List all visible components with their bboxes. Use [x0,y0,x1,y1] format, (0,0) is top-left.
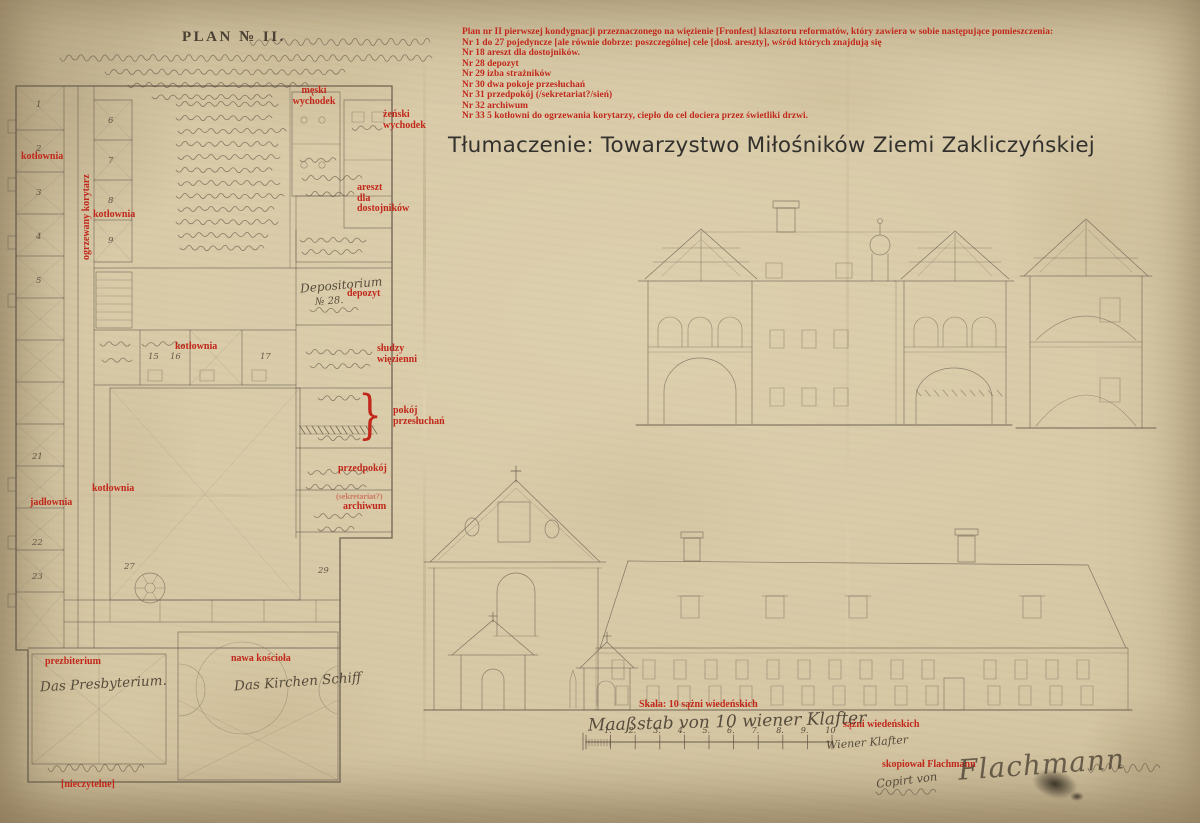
drawing-line [128,82,308,87]
drawing-line [580,642,634,668]
cell-number: 5 [36,276,41,286]
drawing-line [306,426,311,434]
drawing-line [934,390,939,396]
cell-number: 15 [148,352,159,362]
scale-number: 4. [678,726,686,735]
drawing-line [178,207,274,212]
drawing-line [802,330,816,348]
scale-number: 3. [653,726,661,735]
drawing-line [348,426,353,434]
drawing-line [318,426,323,434]
drawing-line [770,330,784,348]
drawing-line [1081,686,1093,705]
drawing-line [1088,565,1126,648]
drawing-line [319,117,325,123]
drawing-line [105,69,345,75]
drawing-line [870,235,890,255]
drawing-line [674,660,686,679]
drawing-line [876,789,936,795]
legend-line: Nr 33 5 kotłowni do ogrzewania korytarzy… [462,111,1092,122]
label-nieczytelne: [nieczytelne] [61,780,115,791]
cell-number: 16 [170,352,181,362]
scale-number: 5. [702,726,710,735]
drawing-line [849,596,867,618]
drawing-line [352,112,364,122]
drawing-line [60,55,432,62]
cell-number: 4 [36,232,41,242]
drawing-line [176,219,278,224]
scale-number: 8. [776,726,784,735]
drawing-line [718,317,742,347]
scale-bar [583,733,832,750]
drawing-line [979,390,984,396]
drawing-line [8,178,16,191]
drawing-line [864,686,876,705]
drawing-line [8,536,16,549]
drawing-line [1036,395,1136,426]
drawing-line [497,573,535,636]
drawing-line [310,363,370,368]
drawing-line [319,162,325,168]
label-nawa-kosciola: nawa kościoła [231,654,291,665]
drawing-line [179,664,205,716]
drawing-line [829,660,841,679]
drawing-line [681,532,703,538]
drawing-line [178,233,268,238]
drawing-line [145,583,155,593]
drawing-line [943,390,948,396]
drawing-line [176,141,278,146]
drawing-line [1036,316,1136,340]
drawing-line [926,686,938,705]
scale-number: 9. [801,726,809,735]
plan-title: PLAN № II. [182,29,286,46]
drawing-line [771,686,783,705]
drawing-line [612,660,624,679]
label-kotlownia: kotłownia [175,342,217,353]
drawing-line [8,294,16,307]
drawing-line [798,660,810,679]
drawing-line [1023,596,1041,618]
interrogation-brace: } [358,390,382,442]
drawing-line [895,686,907,705]
drawing-line [616,686,628,705]
drawing-line [176,101,278,106]
drawing-line [802,686,814,705]
label-kotlownia: kotłownia [93,210,135,221]
drawing-line [736,660,748,679]
drawing-line [8,236,16,249]
cell-number: 22 [32,538,43,548]
drawing-line [352,126,382,131]
drawing-line [178,181,280,186]
drawing-line [767,660,779,679]
drawing-line [153,575,158,584]
drawing-line [777,208,795,232]
label-zenski-wychodek: żeński wychodek [383,110,426,131]
scale-number: 2. [629,726,637,735]
cell-number: 1 [36,100,41,110]
drawing-line [688,317,712,347]
legend-line: Plan nr II pierwszej kondygnacji przezna… [462,27,1092,38]
building-elevation [594,529,1132,710]
drawing-line [918,240,953,276]
drawing-line [176,193,284,198]
drawing-line [312,426,317,434]
translation-credit: Tłumaczenie: Towarzystwo Miłośników Ziem… [448,133,1095,158]
label-ogrzewany-korytarz: ogrzewany korytarz [82,174,93,260]
drawing-line [662,240,700,276]
drawing-line [148,370,162,381]
label-areszt-dla-dostojnikow: areszt dla dostojników [357,183,409,215]
drawing-line [318,526,354,531]
drawing-line [925,390,930,396]
cell-number: 7 [108,156,113,166]
drawing-line [766,263,782,278]
cell-number: 17 [260,352,271,362]
legend-line: Nr 1 do 27 pojedyncze [ale równie dobrze… [462,38,1092,49]
scale-number: 10 [825,726,835,735]
drawing-line [773,201,799,208]
drawing-line [318,395,360,400]
drawing-line [705,660,717,679]
label-sludzy-wiezienni: słudzy więzienni [377,344,417,365]
label-przedpokoj: przedpokój [338,464,387,475]
drawing-line [306,484,366,489]
drawing-line [944,678,964,710]
drawing-line [1015,660,1027,679]
drawing-line [143,575,148,584]
drawing-line [958,536,975,562]
drawing-line [342,426,347,434]
drawing-line [300,158,336,163]
drawing-line [302,175,362,180]
drawing-line [178,155,280,160]
drawing-line [860,660,872,679]
drawing-line [152,94,272,99]
church-elevation [424,466,640,710]
drawing-line [176,115,272,120]
drawing-line [1050,686,1062,705]
drawing-line [482,669,504,710]
drawing-line [970,390,975,396]
drawing-line [1088,230,1132,272]
drawing-line [833,686,845,705]
drawing-line [306,349,372,354]
drawing-line [1019,686,1031,705]
drawing-line [643,660,655,679]
drawing-line [300,426,305,434]
legend-line: Nr 30 dwa pokoje przesłuchań [462,80,1092,91]
cell-number: 21 [32,452,43,462]
drawing-line [302,249,362,254]
drawing-line [955,529,978,535]
cell-number: 27 [124,562,135,572]
drawing-line [1046,660,1058,679]
drawing-line [988,686,1000,705]
drawing-line [834,388,848,406]
drawing-line [452,620,534,655]
drawing-line [943,317,967,347]
drawing-line [891,660,903,679]
label-kotlownia: kotłownia [21,152,63,163]
drawing-line [802,388,816,406]
drawing-line [200,370,214,381]
label-pokoj-przesluchan: pokój przesłuchań [393,406,445,427]
scale-number: 6. [727,726,735,735]
drawing-line [597,681,615,706]
drawing-line [8,478,16,491]
drawing-line [1077,660,1089,679]
drawing-line [300,237,366,242]
scanned-plan-document: Plan nr II pierwszej kondygnacji przezna… [0,0,1200,823]
label-archiwum: archiwum [343,502,386,513]
drawing-line [957,240,992,276]
drawing-line [102,358,132,362]
drawing-line [324,426,329,434]
scale-number: 1. [604,726,612,735]
drawing-line [301,117,307,123]
drawing-line [430,480,600,562]
drawing-line [336,426,341,434]
drawing-line [301,162,307,168]
section-drawing [636,201,1156,428]
drawing-line [176,167,272,172]
label-meski-wychodek: męski wychodek [288,86,340,107]
drawing-line [96,272,132,328]
cell-number: 2 [36,144,41,154]
drawing-line [570,670,576,708]
drawing-line [178,128,286,133]
cell-number: 29 [318,566,329,576]
drawing-line [664,358,736,424]
drawing-line [770,388,784,406]
drawing-line [972,317,996,347]
cell-number: 23 [32,572,43,582]
drawing-line [952,390,957,396]
label-skala: Skala: 10 sążni wiedeńskich [639,700,758,711]
cell-number: 3 [36,188,41,198]
drawing-line [180,245,264,250]
cell-number: 6 [108,116,113,126]
legend-line: Nr 29 izba strażników [462,69,1092,80]
label-kotlownia: kotłownia [92,484,134,495]
drawing-line [658,317,682,347]
drawing-line [498,502,530,542]
drawing-line [48,764,144,772]
drawing-line [1040,230,1084,272]
drawing-line [916,368,992,424]
drawing-line [252,370,266,381]
drawing-line [8,594,16,607]
drawing-line [988,390,993,396]
drawing-line [628,561,1088,565]
legend-line: Nr 18 areszt dla dostojników. [462,48,1092,59]
legend: Plan nr II pierwszej kondygnacji przezna… [462,27,1092,122]
label-jadlownia: jadłownia [30,498,72,509]
drawing-line [438,488,594,560]
drawing-line [766,596,784,618]
scale-number: 7. [752,726,760,735]
legend-line: Nr 32 archiwum [462,101,1092,112]
drawing-line [600,561,628,648]
drawing-line [330,426,335,434]
drawing-line [314,514,362,519]
drawing-line [834,330,848,348]
drawing-line [961,390,966,396]
drawing-line [684,538,700,561]
drawing-line [836,263,852,278]
drawing-line [984,660,996,679]
drawing-line [997,390,1002,396]
drawing-line [922,660,934,679]
legend-line: Nr 31 przedpokój (/sekretariat?/sień) [462,90,1092,101]
drawing-line [318,435,360,440]
drawing-line [914,317,938,347]
cell-number: 8 [108,196,113,206]
architectural-drawing [0,0,1200,823]
drawing-line [702,240,740,276]
cell-number: 9 [108,236,113,246]
drawing-line [310,307,358,312]
handwriting-depositorium-number: № 28. [315,295,344,308]
drawing-line [100,342,130,347]
drawing-line [1100,298,1120,322]
drawing-line [8,120,16,133]
legend-line: Nr 28 depozyt [462,59,1092,70]
drawing-line [681,596,699,618]
drawing-line [545,520,559,538]
label-prezbiterium: prezbiterium [45,657,101,668]
